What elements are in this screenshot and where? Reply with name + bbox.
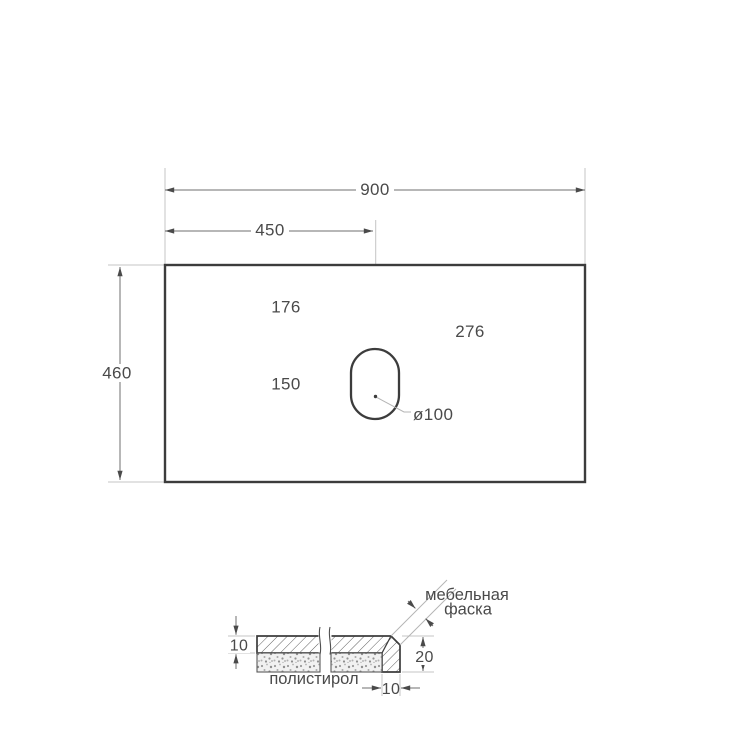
- dim-hole-top-offset: 176: [271, 298, 301, 317]
- sink-hole-cutout: [351, 349, 399, 419]
- dim-hole-center-x: 450: [255, 221, 285, 240]
- chamfer-arrow-upper: [408, 601, 415, 608]
- dim-top-thickness: 10: [230, 638, 248, 655]
- dim-hole-diameter: ø100: [413, 405, 453, 424]
- technical-drawing-page: 900 450 460 176 150 276 ø100 10 2: [0, 0, 750, 750]
- section-view: 10 20 10 мебельная фаска полистирол: [228, 580, 509, 698]
- dim-overall-depth: 460: [102, 364, 132, 383]
- dim-overall-width: 900: [360, 180, 390, 199]
- chamfer-label-line2: фаска: [444, 601, 493, 619]
- chamfer-arrow-lower: [426, 619, 433, 626]
- hole-center-mark: [374, 395, 377, 398]
- dim-hole-center-y: 276: [455, 322, 485, 341]
- polystyrene-label: полистирол: [269, 670, 358, 688]
- dim-edge-width: 10: [382, 681, 400, 698]
- countertop-drawing: 900 450 460 176 150 276 ø100 10 2: [0, 0, 750, 750]
- dim-edge-height: 20: [415, 649, 433, 666]
- dim-hole-slot-length: 150: [271, 375, 301, 394]
- plan-view: 900 450 460 176 150 276 ø100: [98, 168, 585, 482]
